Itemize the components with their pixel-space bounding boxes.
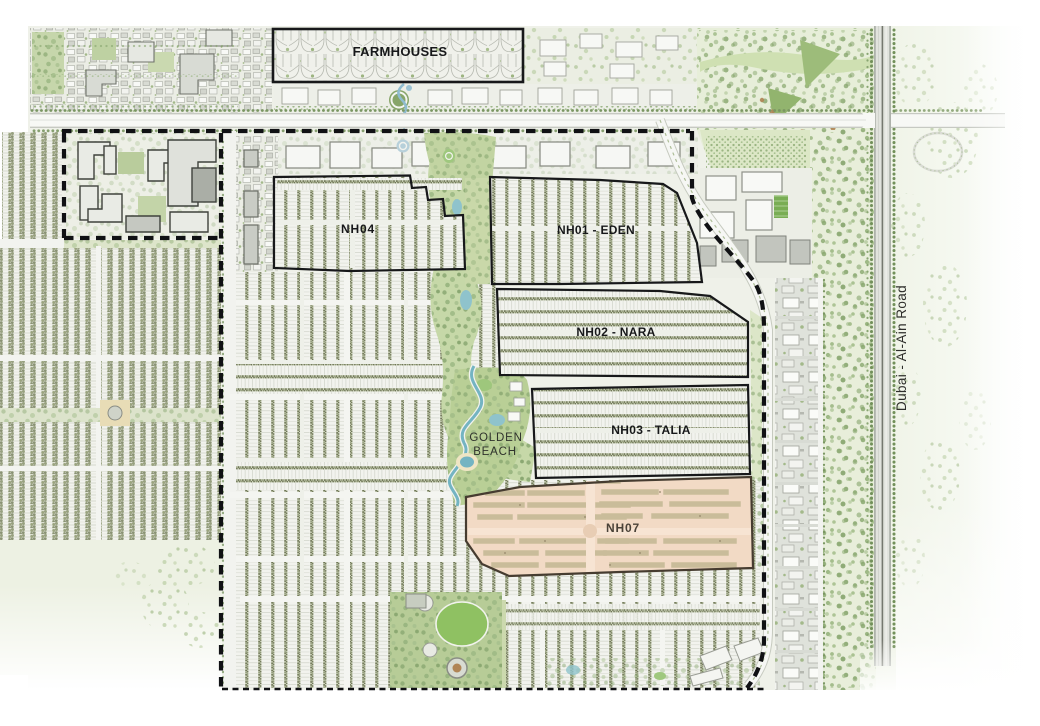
svg-text:NH02 - NARA: NH02 - NARA (576, 325, 655, 339)
svg-text:BEACH: BEACH (473, 446, 517, 458)
svg-text:GOLDEN: GOLDEN (469, 432, 522, 444)
svg-text:NH07: NH07 (606, 521, 640, 535)
svg-text:Dubai - Al-Ain Road: Dubai - Al-Ain Road (894, 285, 909, 411)
svg-text:FARMHOUSES: FARMHOUSES (353, 44, 448, 59)
svg-text:NH01 - EDEN: NH01 - EDEN (557, 223, 635, 237)
svg-text:NH03 - TALIA: NH03 - TALIA (611, 423, 690, 437)
svg-text:NH04: NH04 (341, 222, 375, 236)
